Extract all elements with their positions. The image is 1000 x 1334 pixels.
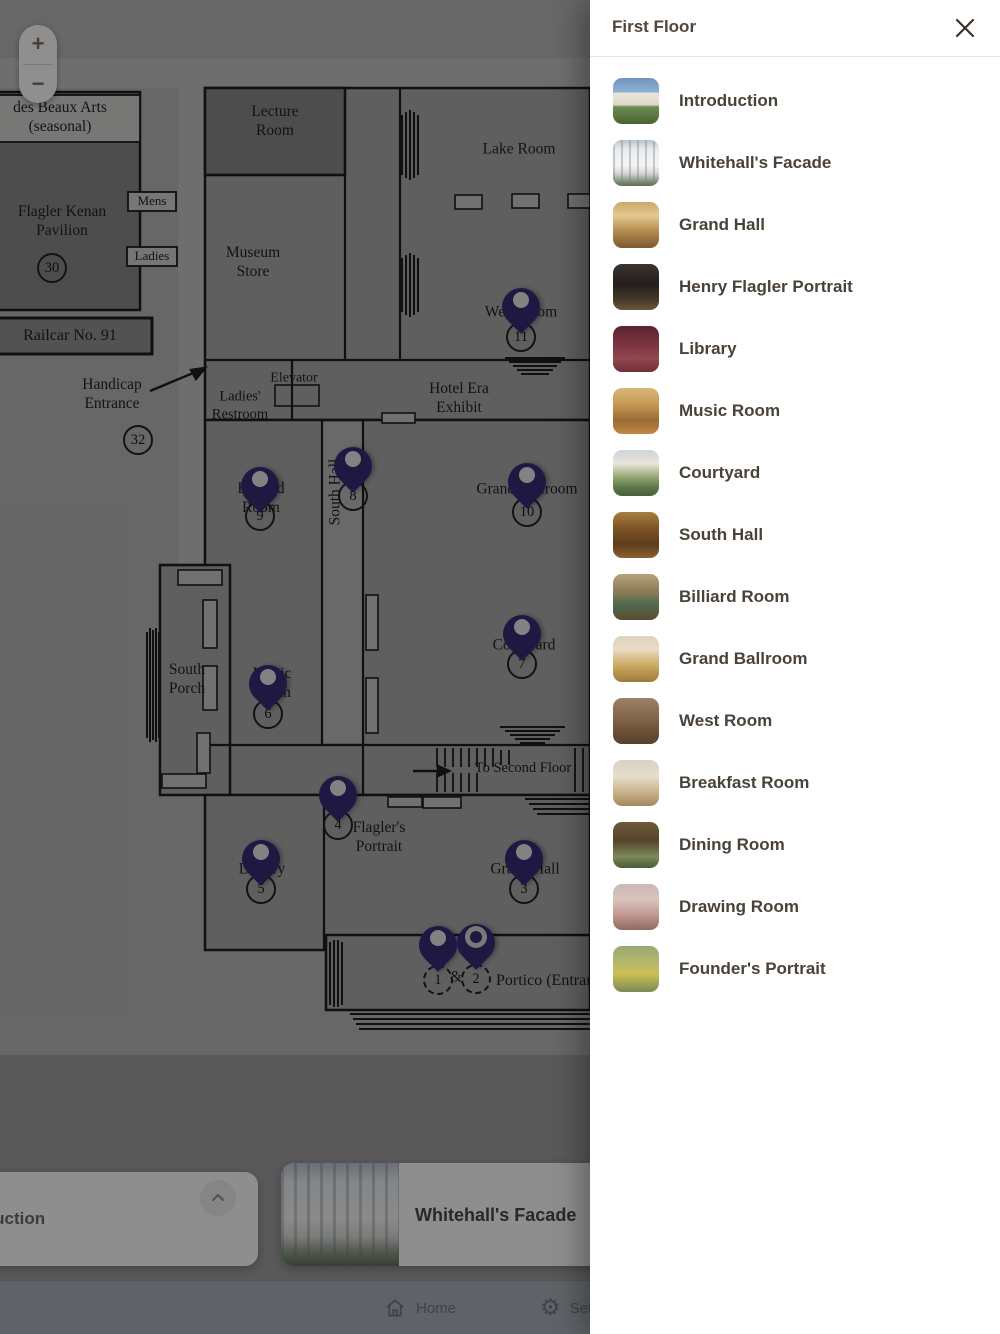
room-name: Grand Hall xyxy=(679,215,765,235)
panel-header: First Floor xyxy=(590,0,1000,57)
room-row-west-room[interactable]: West Room xyxy=(590,698,1000,744)
room-row-drawing-room[interactable]: Drawing Room xyxy=(590,884,1000,930)
room-name: Music Room xyxy=(679,401,780,421)
room-name: Introduction xyxy=(679,91,778,111)
room-row-founders-portrait[interactable]: Founder's Portrait xyxy=(590,946,1000,992)
room-row-south-hall[interactable]: South Hall xyxy=(590,512,1000,558)
room-thumbnail xyxy=(613,388,659,434)
room-thumbnail xyxy=(613,946,659,992)
room-row-henry-flagler-portrait[interactable]: Henry Flagler Portrait xyxy=(590,264,1000,310)
room-thumbnail xyxy=(613,884,659,930)
room-thumbnail xyxy=(613,760,659,806)
room-row-grand-ballroom[interactable]: Grand Ballroom xyxy=(590,636,1000,682)
room-name: Grand Ballroom xyxy=(679,649,807,669)
room-thumbnail xyxy=(613,636,659,682)
close-button[interactable] xyxy=(950,13,980,43)
room-row-grand-hall[interactable]: Grand Hall xyxy=(590,202,1000,248)
room-thumbnail xyxy=(613,698,659,744)
room-name: Courtyard xyxy=(679,463,760,483)
room-thumbnail xyxy=(613,202,659,248)
close-icon xyxy=(953,16,977,40)
room-row-library[interactable]: Library xyxy=(590,326,1000,372)
room-thumbnail xyxy=(613,78,659,124)
room-list: Introduction Whitehall's Facade Grand Ha… xyxy=(590,57,1000,992)
room-name: West Room xyxy=(679,711,772,731)
room-thumbnail xyxy=(613,574,659,620)
screen: des Beaux Arts (seasonal) Lecture Room L… xyxy=(0,0,1000,1334)
room-name: Drawing Room xyxy=(679,897,799,917)
room-name: Henry Flagler Portrait xyxy=(679,277,853,297)
room-row-introduction[interactable]: Introduction xyxy=(590,78,1000,124)
room-row-music-room[interactable]: Music Room xyxy=(590,388,1000,434)
room-thumbnail xyxy=(613,264,659,310)
room-name: South Hall xyxy=(679,525,763,545)
room-row-dining-room[interactable]: Dining Room xyxy=(590,822,1000,868)
first-floor-panel: First Floor Introduction Whitehall's Fac… xyxy=(590,0,1000,1334)
room-name: Library xyxy=(679,339,737,359)
room-name: Whitehall's Facade xyxy=(679,153,831,173)
room-name: Dining Room xyxy=(679,835,785,855)
room-row-whitehalls-facade[interactable]: Whitehall's Facade xyxy=(590,140,1000,186)
room-thumbnail xyxy=(613,512,659,558)
room-thumbnail xyxy=(613,450,659,496)
room-row-courtyard[interactable]: Courtyard xyxy=(590,450,1000,496)
room-thumbnail xyxy=(613,140,659,186)
room-name: Breakfast Room xyxy=(679,773,809,793)
room-row-breakfast-room[interactable]: Breakfast Room xyxy=(590,760,1000,806)
room-name: Founder's Portrait xyxy=(679,959,826,979)
room-thumbnail xyxy=(613,326,659,372)
panel-title: First Floor xyxy=(612,17,696,37)
room-thumbnail xyxy=(613,822,659,868)
room-row-billiard-room[interactable]: Billiard Room xyxy=(590,574,1000,620)
room-name: Billiard Room xyxy=(679,587,790,607)
